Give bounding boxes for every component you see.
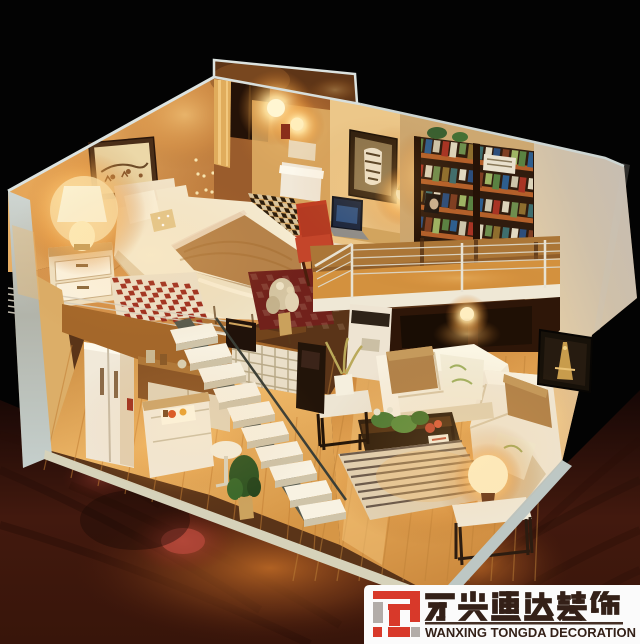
svg-text:WANXING TONGDA DECORATION: WANXING TONGDA DECORATION xyxy=(425,625,636,640)
